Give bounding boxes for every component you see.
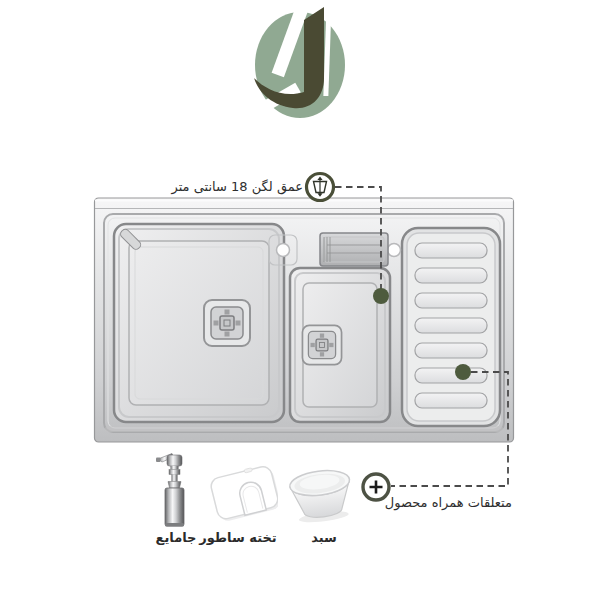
included-callout-line: [391, 372, 508, 486]
soap-dispenser-image: [150, 450, 202, 530]
product-infographic: عمق لگن 18 سانتی متر متعلقات همراه محصول: [0, 0, 600, 600]
depth-callout-line: [335, 187, 381, 290]
label-basket: سبد: [294, 530, 354, 545]
depth-gauge-icon: [307, 174, 334, 201]
basket-image: [286, 466, 356, 524]
depth-callout-label: عمق لگن 18 سانتی متر: [171, 179, 303, 194]
label-cutting-board: تخته ساطور: [193, 530, 283, 545]
included-callout-label: متعلقات همراه محصول: [386, 495, 512, 510]
included-marker-dot: [455, 364, 471, 380]
cutting-board-image: [208, 458, 278, 528]
dispenser-bottle: [165, 488, 184, 526]
dispenser-pump-head: [167, 455, 182, 466]
depth-marker-dot: [373, 288, 389, 304]
